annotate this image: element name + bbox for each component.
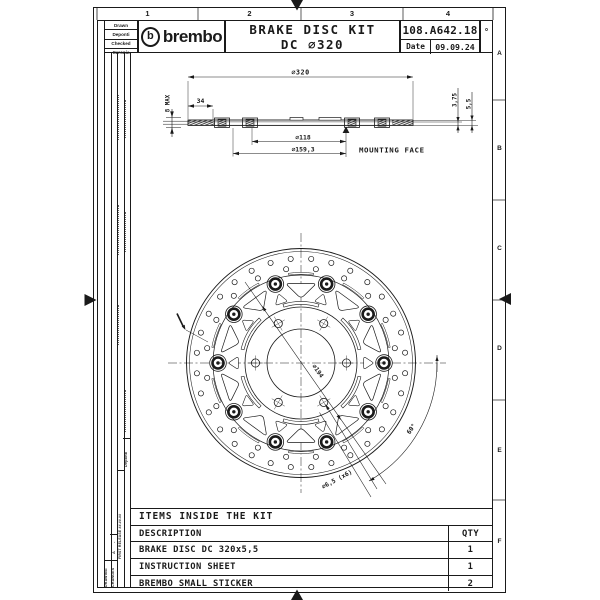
revision-tick	[125, 212, 126, 252]
table-row: INSTRUCTION SHEET 1	[131, 558, 492, 575]
revision-tick	[125, 390, 126, 432]
zone-col-3: 3	[301, 7, 403, 20]
zone-col-2: 2	[198, 7, 301, 20]
item-description: BRAKE DISC DC 320x5,5	[139, 545, 259, 555]
title-cell: BRAKE DISC KIT DC ∅320	[225, 20, 400, 53]
table-row: BREMBO SMALL STICKER 2	[131, 575, 492, 592]
table-row: BRAKE DISC DC 320x5,5 1	[131, 541, 492, 558]
brand-cell: b brembo	[138, 20, 225, 53]
drawing-sheet: ∅320 34 8 MAX ∅118 ∅159,3 3,75 5,5 MOUNT…	[0, 0, 600, 600]
revision-strip-line	[104, 53, 105, 588]
zone-col-1: 1	[97, 7, 198, 20]
signature-table: Drawn Deponti Checked Caronia	[104, 20, 138, 53]
drawn-name: Deponti	[105, 29, 137, 38]
kit-table-title: ITEMS INSIDE THE KIT	[139, 511, 273, 522]
part-number-cell: 108.A642.18 Date 09.09.24	[400, 20, 480, 53]
release-note: FIRST RELEASE ##.##.##	[118, 475, 124, 559]
drawing-title-line1: BRAKE DISC KIT	[249, 22, 375, 37]
description-header: DESCRIPTION	[139, 529, 202, 539]
revision-signer: Deponti	[124, 442, 130, 467]
revision-dash: -	[111, 537, 116, 543]
item-qty: 1	[448, 559, 492, 575]
revision-col2-label: CHANGES	[111, 561, 117, 587]
inner-frame	[97, 20, 493, 588]
revision-tick	[118, 305, 119, 345]
zone-row-e: E	[493, 447, 506, 454]
revision-strip-line	[111, 53, 112, 588]
item-qty: 1	[448, 542, 492, 558]
revision-letter: A	[111, 545, 116, 554]
zone-row-b: B	[493, 145, 506, 152]
checked-label: Checked	[105, 39, 137, 48]
item-description: BREMBO SMALL STICKER	[139, 579, 253, 589]
format-mark: o	[481, 27, 492, 33]
date-value: 09.09.24	[431, 40, 479, 54]
kit-table-title-row: ITEMS INSIDE THE KIT	[131, 509, 492, 525]
zone-row-c: C	[493, 245, 506, 252]
item-qty: 2	[448, 576, 492, 592]
item-description: INSTRUCTION SHEET	[139, 562, 236, 572]
revision-col1-label: DRAWING	[104, 561, 110, 587]
brembo-logo-icon: b	[141, 27, 160, 47]
revision-tick	[118, 205, 119, 255]
drawing-title-line2: DC ∅320	[281, 37, 344, 52]
kit-items-table: ITEMS INSIDE THE KIT DESCRIPTION QTY BRA…	[130, 508, 493, 588]
zone-col-4: 4	[403, 7, 493, 20]
zone-row-a: A	[493, 50, 506, 57]
revision-strip-divider	[123, 438, 130, 439]
kit-table-header-row: DESCRIPTION QTY	[131, 525, 492, 542]
brembo-wordmark: brembo	[163, 27, 222, 47]
drawn-label: Drawn	[105, 21, 137, 29]
revision-tick	[118, 95, 119, 140]
revision-tick	[125, 100, 126, 138]
part-number: 108.A642.18	[401, 21, 479, 39]
zone-row-d: D	[493, 345, 506, 352]
revision-strip-divider	[117, 470, 124, 471]
format-cell: o	[480, 20, 493, 53]
date-label: Date	[401, 40, 431, 54]
zone-row-f: F	[493, 538, 506, 545]
qty-header: QTY	[448, 526, 492, 542]
revision-strip-divider	[110, 534, 117, 535]
